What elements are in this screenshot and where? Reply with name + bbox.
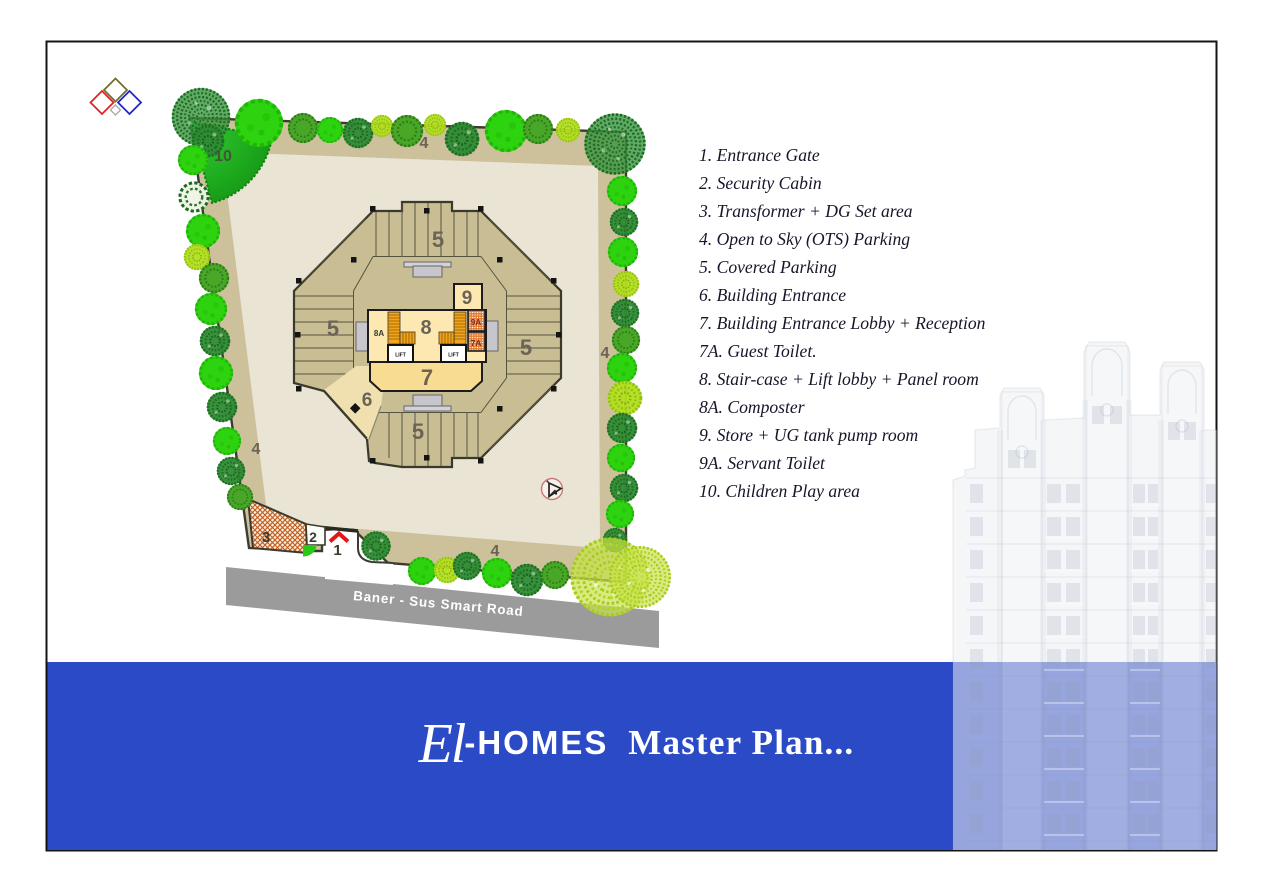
svg-text:5: 5 bbox=[432, 227, 444, 252]
svg-text:10: 10 bbox=[214, 148, 232, 165]
svg-text:8: 8 bbox=[420, 317, 431, 339]
svg-text:4: 4 bbox=[601, 345, 610, 362]
svg-text:3: 3 bbox=[262, 529, 270, 546]
svg-text:9: 9 bbox=[462, 288, 473, 309]
svg-text:1: 1 bbox=[333, 542, 341, 559]
svg-text:7A: 7A bbox=[471, 338, 482, 348]
svg-text:5: 5 bbox=[327, 316, 339, 341]
svg-text:5: 5 bbox=[520, 335, 532, 360]
svg-text:8A: 8A bbox=[374, 329, 384, 338]
svg-text:7: 7 bbox=[421, 365, 433, 390]
svg-text:4: 4 bbox=[252, 441, 261, 458]
svg-text:LIFT: LIFT bbox=[395, 353, 406, 359]
svg-text:5: 5 bbox=[412, 419, 424, 444]
svg-text:2: 2 bbox=[309, 529, 317, 545]
svg-text:9A: 9A bbox=[471, 318, 481, 327]
svg-text:6: 6 bbox=[362, 390, 373, 411]
svg-text:LIFT: LIFT bbox=[448, 353, 459, 359]
svg-text:4: 4 bbox=[491, 543, 500, 560]
